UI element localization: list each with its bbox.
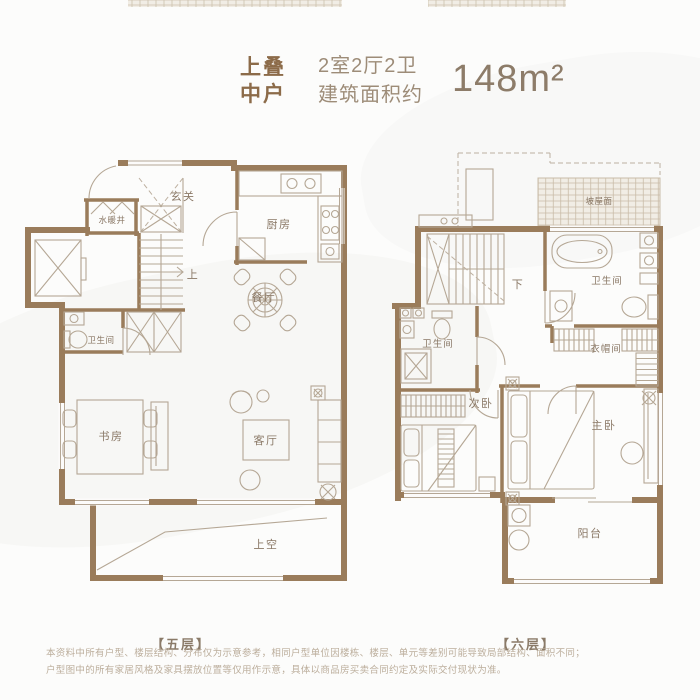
closet-icon [127,312,181,352]
unit-tag-line1: 上叠 [240,54,286,81]
bathroom-fixtures-5f [64,312,87,348]
room-label-living: 客厅 [254,433,279,447]
master-bedroom-furniture [506,377,658,505]
roof-tiles-left [128,0,342,7]
unit-area: 148m² [452,58,565,101]
room-label-sloped-roof: 坡屋面 [585,196,612,206]
room-label-second-bedroom: 次卧 [469,396,494,410]
disclaimer: 本资料中所有户型、楼层结构、分布仅为示意参考，相同户型单位因楼栋、楼层、单元等差… [46,646,668,679]
unit-spec-line2: 建筑面积约 [318,81,423,110]
shaft-symbol-icon [91,202,134,214]
room-label-kitchen: 厨房 [267,218,292,231]
void-boundary-line [97,518,327,570]
basin-counter-icon [419,215,472,227]
kitchen-fixtures [239,171,342,262]
room-label-study: 书房 [99,430,124,443]
room-label-master-bedroom: 主卧 [592,419,617,432]
floorplan-6f: 坡屋面 下 卫生间 卫生间 衣帽间 次卧 主卧 阳台 [392,141,684,603]
unit-spec: 2室2厅2卫 建筑面积约 [318,52,423,110]
room-label-dining: 餐厅 [252,290,277,304]
cloakroom-racks-icon [554,329,658,386]
top-tile-strip [0,0,700,8]
roof-box [466,169,493,220]
unit-spec-line1: 2室2厅2卫 [318,52,423,81]
room-label-utility-shaft: 水暖井 [98,215,125,225]
living-furniture [230,386,341,500]
room-label-balcony: 阳台 [578,526,603,540]
room-label-stairs-up: 上 [187,268,200,281]
floorplan-5f: 玄关 水暖井 厨房 上 餐厅 卫生间 书房 客厅 上空 [15,150,347,592]
room-label-cloakroom: 衣帽间 [590,343,622,355]
unit-tag-line2: 中户 [240,81,286,108]
unit-tag: 上叠 中户 [240,54,286,108]
room-label-void: 上空 [254,537,279,551]
disclaimer-line1: 本资料中所有户型、楼层结构、分布仅为示意参考，相同户型单位因楼栋、楼层、单元等差… [46,646,668,663]
room-label-stairs-down: 下 [512,279,525,291]
room-label-entrance: 玄关 [171,189,196,203]
room-label-bathroom-5f: 卫生间 [87,335,114,345]
stairs-down-icon [427,234,504,304]
elevator-icon [35,240,86,296]
balcony-fixtures [508,505,530,550]
room-label-master-bathroom: 卫生间 [591,275,623,287]
walls-5f [25,160,347,581]
windows-6f [404,226,664,585]
doors-5f [89,166,237,355]
tv-cabinet-icon [151,402,168,470]
roof-tiles-right [428,0,566,7]
disclaimer-line2: 户型图中的所有家居风格及家具摆放位置等仅用作示意，具体以商品房买卖合同约定及实际… [46,663,668,680]
room-label-second-bathroom: 卫生间 [422,338,454,350]
